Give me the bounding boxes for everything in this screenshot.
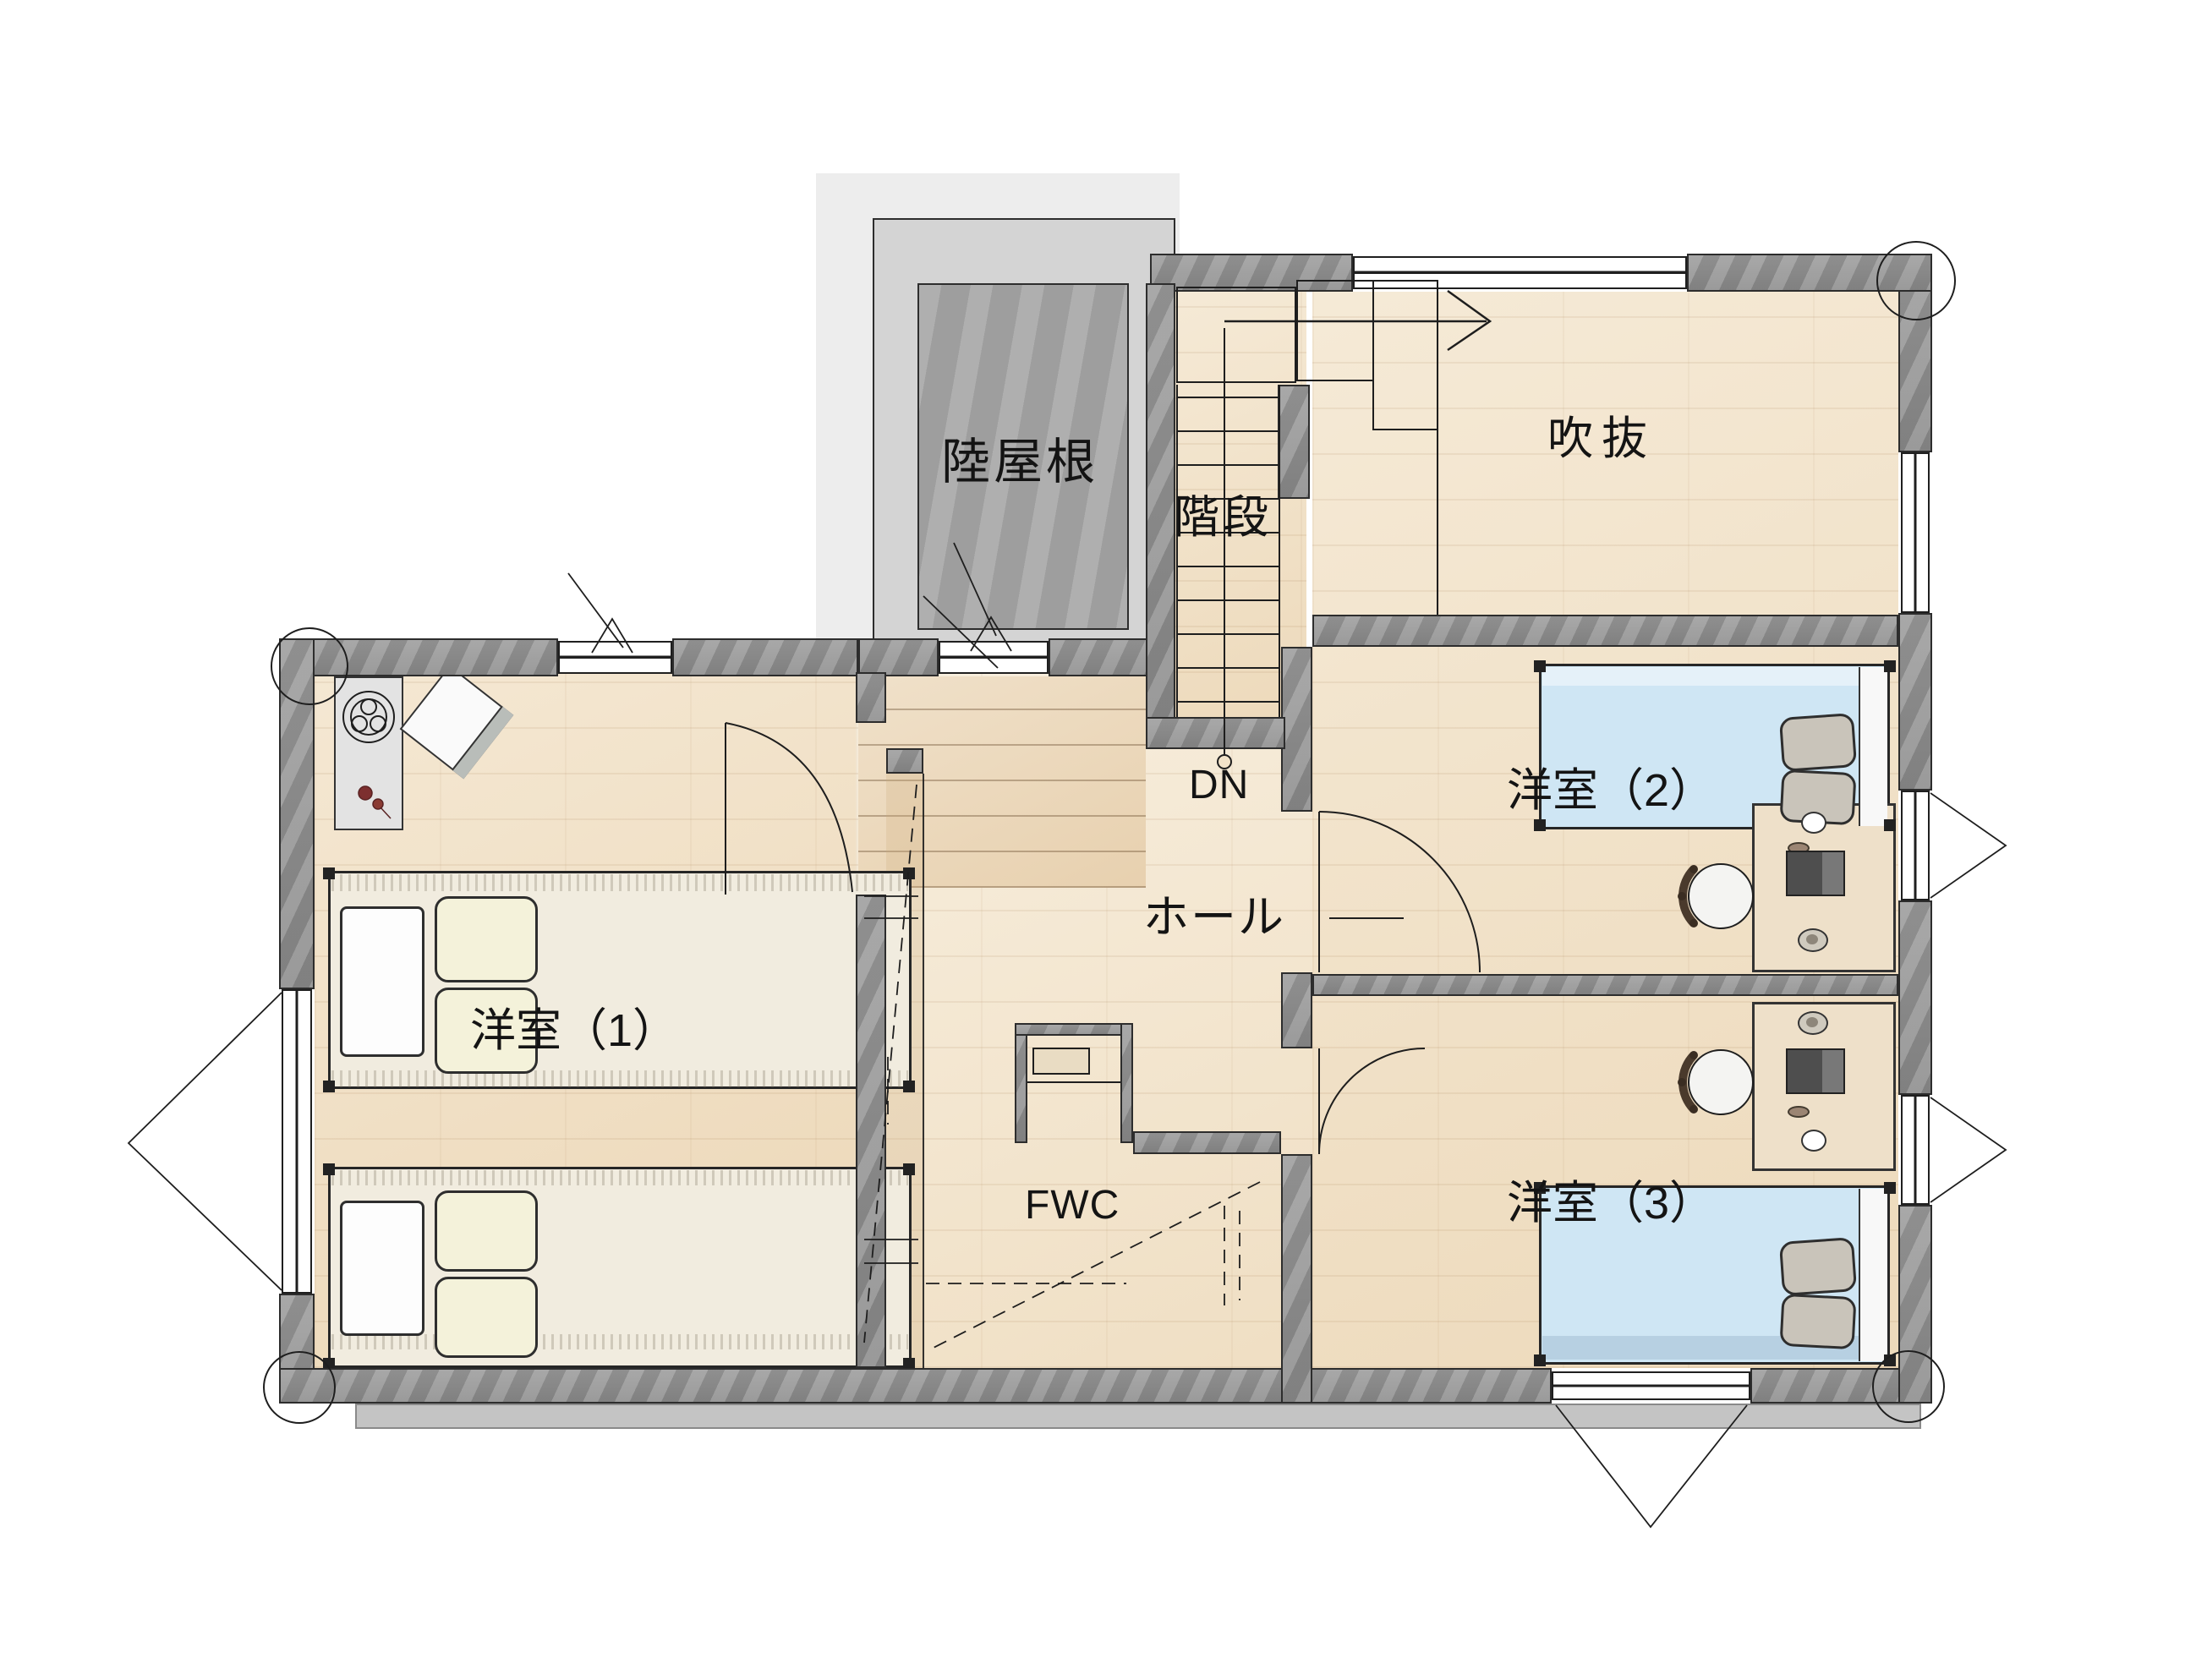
window-bedroom2-east	[1901, 791, 1930, 900]
bed-post	[1534, 819, 1546, 831]
floorplan-canvas: 陸屋根 階段 吹抜 DN 洋室（2） ホール 洋室（1） FWC 洋室（3）	[0, 0, 2196, 1680]
label-fwc: FWC	[1025, 1185, 1120, 1226]
window-bedroom1-west	[282, 989, 312, 1294]
bed-post	[323, 1081, 335, 1092]
bed-post	[903, 1081, 915, 1092]
wall-north-upper	[1150, 254, 1353, 292]
bed-ribbing	[331, 1170, 908, 1185]
wall-east	[1898, 900, 1932, 1095]
bed-post	[1534, 1354, 1546, 1366]
pillow	[1779, 713, 1857, 772]
desk-monitor	[1786, 1048, 1845, 1094]
label-stairs: 階段	[1174, 495, 1272, 540]
bed-post	[323, 867, 335, 879]
pillow	[1779, 1237, 1857, 1296]
pillow	[435, 1277, 538, 1358]
window-void-east	[1901, 452, 1930, 613]
desk-lamp-dot	[1806, 934, 1818, 944]
label-hall: ホール	[1143, 895, 1285, 940]
bed-post	[1884, 1182, 1896, 1194]
bed-sheet	[1859, 667, 1887, 826]
wall-hall-east	[1281, 647, 1312, 812]
wall-niche	[1120, 1023, 1133, 1143]
wall-east	[1898, 613, 1932, 791]
desk-cup	[1801, 812, 1826, 834]
window-void-north	[1353, 256, 1687, 289]
label-bedroom3: 洋室（3）	[1507, 1180, 1715, 1226]
wall-stairs-pillar	[1278, 385, 1310, 499]
wall-south-outer	[355, 1404, 1921, 1429]
wall-niche	[1015, 1023, 1133, 1036]
wall-east	[1898, 1205, 1932, 1404]
label-stairs-down: DN	[1189, 765, 1249, 806]
wall-north	[672, 638, 858, 676]
wall-west	[279, 638, 315, 989]
wall-hall-east	[1281, 972, 1312, 1048]
bed-post	[1534, 660, 1546, 672]
bed-ribbing	[331, 874, 908, 891]
pillow	[340, 1201, 424, 1336]
desk-lamp-dot	[1806, 1017, 1818, 1027]
label-flat-roof: 陸屋根	[941, 438, 1098, 487]
wall-stairs-south	[1146, 717, 1285, 749]
desk-tray	[1788, 1106, 1810, 1118]
wall-south	[279, 1368, 1552, 1404]
wall-stairs-west	[1146, 283, 1175, 719]
bed-post	[323, 1163, 335, 1175]
bed-post	[1884, 660, 1896, 672]
window-bedroom3-south	[1552, 1371, 1750, 1400]
bed-post	[903, 867, 915, 879]
wall-fwc-north	[1133, 1131, 1281, 1154]
bed-highlight	[1542, 667, 1859, 686]
wall-roof-south	[858, 638, 939, 676]
wall-closet-cap	[886, 748, 923, 774]
bedroom1-desk	[334, 676, 403, 830]
bed-post	[1884, 819, 1896, 831]
pillow	[435, 1190, 538, 1272]
bed-sheet	[1859, 1189, 1887, 1361]
wall-niche	[1015, 1023, 1027, 1143]
wall-bedroom1-east	[856, 895, 886, 1368]
wall-bedroom1-east	[856, 672, 886, 723]
label-bedroom2: 洋室（2）	[1507, 768, 1715, 813]
bed-post	[903, 1163, 915, 1175]
bed-ribbing	[331, 1334, 908, 1349]
wall-north-upper	[1687, 254, 1932, 292]
pillow	[1779, 1294, 1856, 1350]
window-bedroom3-east	[1901, 1095, 1930, 1205]
wall-north	[279, 638, 558, 676]
pillow	[435, 896, 538, 982]
desk-cup	[1801, 1130, 1826, 1152]
wall-void-bedroom2	[1312, 615, 1898, 647]
label-bedroom1: 洋室（1）	[470, 1008, 678, 1053]
bed-post	[1884, 1354, 1896, 1366]
label-void: 吹抜	[1547, 416, 1656, 462]
bed-ribbing	[331, 1070, 908, 1087]
window-bedroom1-north	[558, 641, 672, 674]
window-roof-south	[939, 641, 1049, 674]
wall-bedroom2-bedroom3	[1312, 974, 1898, 996]
desk-monitor	[1786, 851, 1845, 896]
wall-hall-east	[1281, 1154, 1312, 1404]
pillow	[340, 906, 424, 1057]
